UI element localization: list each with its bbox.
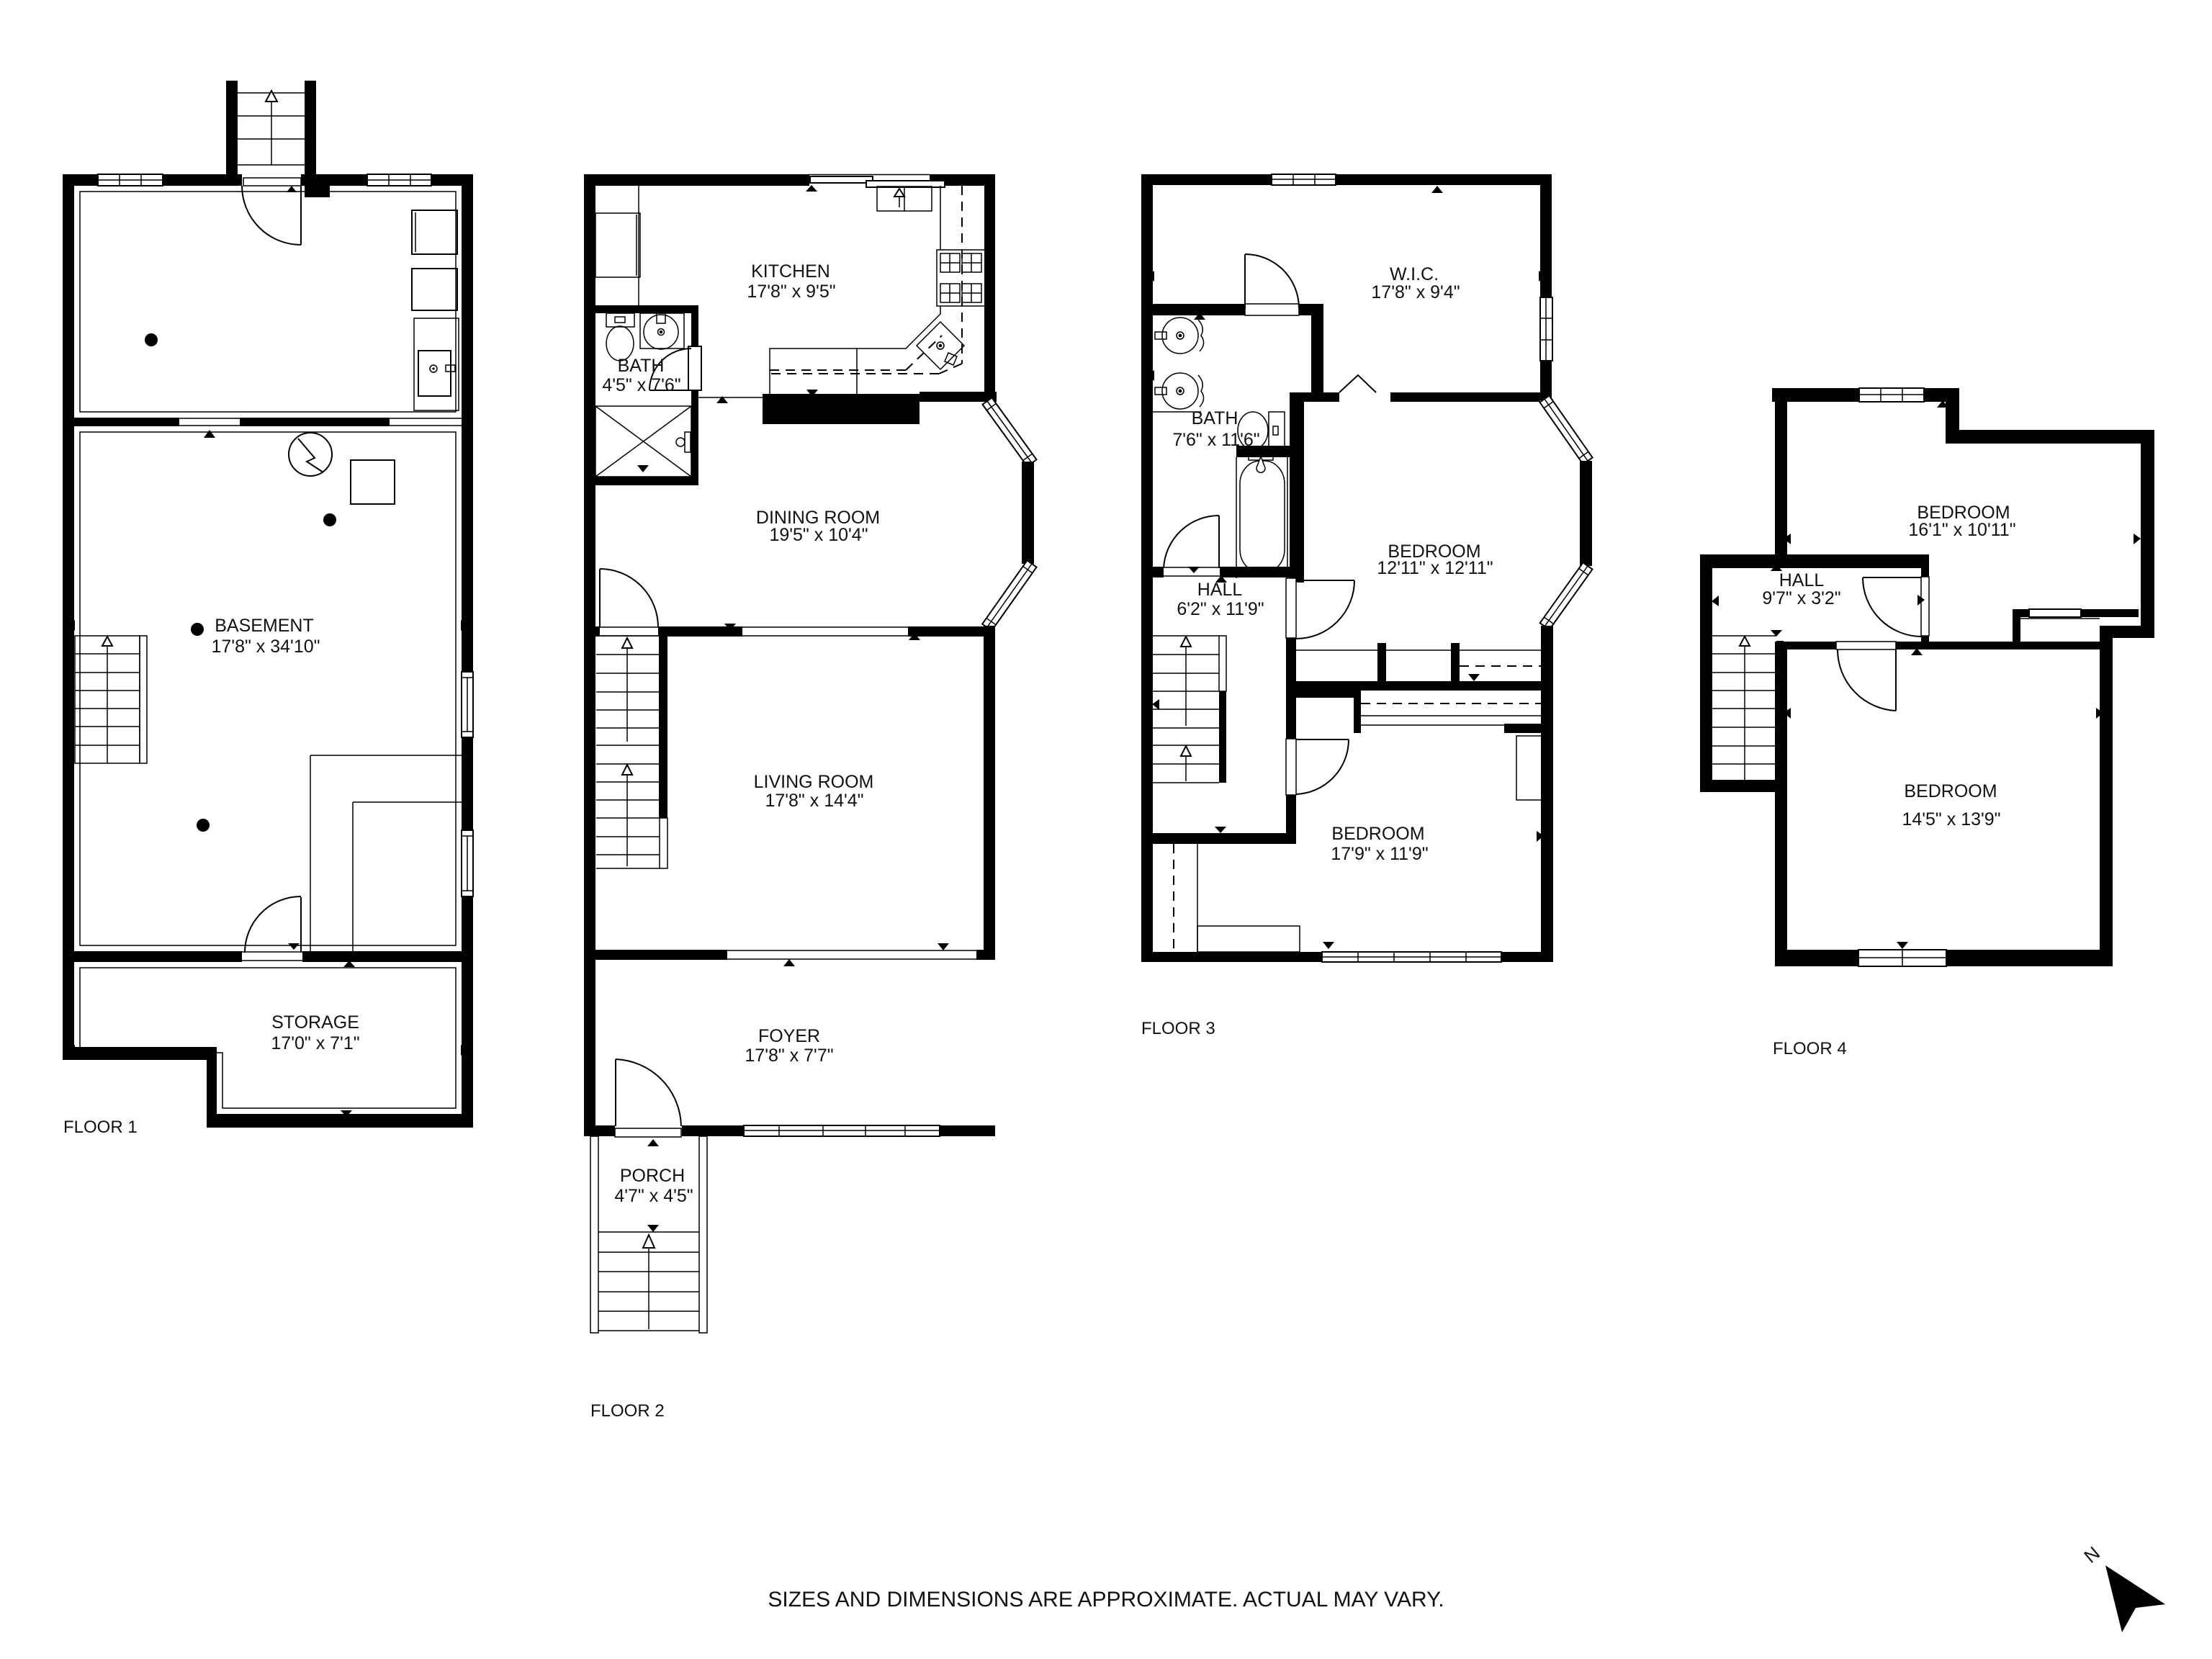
svg-text:16'1" x 10'11": 16'1" x 10'11": [1908, 520, 2015, 540]
svg-text:BEDROOM: BEDROOM: [1904, 781, 1997, 801]
svg-text:LIVING ROOM: LIVING ROOM: [754, 772, 874, 792]
svg-text:14'5" x 13'9": 14'5" x 13'9": [1902, 809, 2000, 829]
svg-text:6'2" x 11'9": 6'2" x 11'9": [1177, 599, 1264, 619]
svg-text:17'9" x 11'9": 17'9" x 11'9": [1331, 844, 1428, 864]
svg-text:12'11" x 12'11": 12'11" x 12'11": [1377, 558, 1493, 578]
svg-text:17'8" x 9'4": 17'8" x 9'4": [1371, 282, 1460, 302]
svg-text:PORCH: PORCH: [620, 1166, 685, 1186]
svg-text:17'8" x 7'7": 17'8" x 7'7": [745, 1046, 833, 1066]
svg-text:17'8" x 34'10": 17'8" x 34'10": [211, 637, 320, 657]
svg-text:17'0" x 7'1": 17'0" x 7'1": [271, 1033, 359, 1053]
svg-text:HALL: HALL: [1779, 570, 1825, 590]
svg-text:SIZES AND DIMENSIONS ARE APPRO: SIZES AND DIMENSIONS ARE APPROXIMATE. AC…: [768, 1588, 1444, 1611]
svg-text:FOYER: FOYER: [758, 1026, 820, 1046]
svg-text:BATH: BATH: [1192, 408, 1238, 428]
svg-text:STORAGE: STORAGE: [271, 1012, 359, 1033]
svg-text:9'7" x 3'2": 9'7" x 3'2": [1762, 588, 1840, 608]
svg-text:FLOOR 4: FLOOR 4: [1773, 1039, 1847, 1058]
svg-text:BASEMENT: BASEMENT: [215, 616, 314, 636]
svg-text:17'8" x 14'4": 17'8" x 14'4": [765, 791, 863, 811]
svg-text:HALL: HALL: [1197, 580, 1243, 600]
svg-text:17'8" x 9'5": 17'8" x 9'5": [747, 282, 835, 302]
svg-text:FLOOR 1: FLOOR 1: [63, 1118, 138, 1137]
svg-text:4'5" x 7'6": 4'5" x 7'6": [602, 375, 680, 395]
svg-text:BEDROOM: BEDROOM: [1331, 824, 1424, 844]
svg-text:FLOOR 3: FLOOR 3: [1141, 1019, 1215, 1038]
svg-text:4'7" x 4'5": 4'7" x 4'5": [614, 1186, 693, 1206]
svg-text:19'5" x 10'4": 19'5" x 10'4": [769, 525, 868, 545]
svg-text:W.I.C.: W.I.C.: [1390, 264, 1439, 284]
svg-text:FLOOR 2: FLOOR 2: [590, 1401, 665, 1421]
svg-text:BATH: BATH: [618, 356, 665, 376]
svg-text:KITCHEN: KITCHEN: [751, 261, 830, 282]
